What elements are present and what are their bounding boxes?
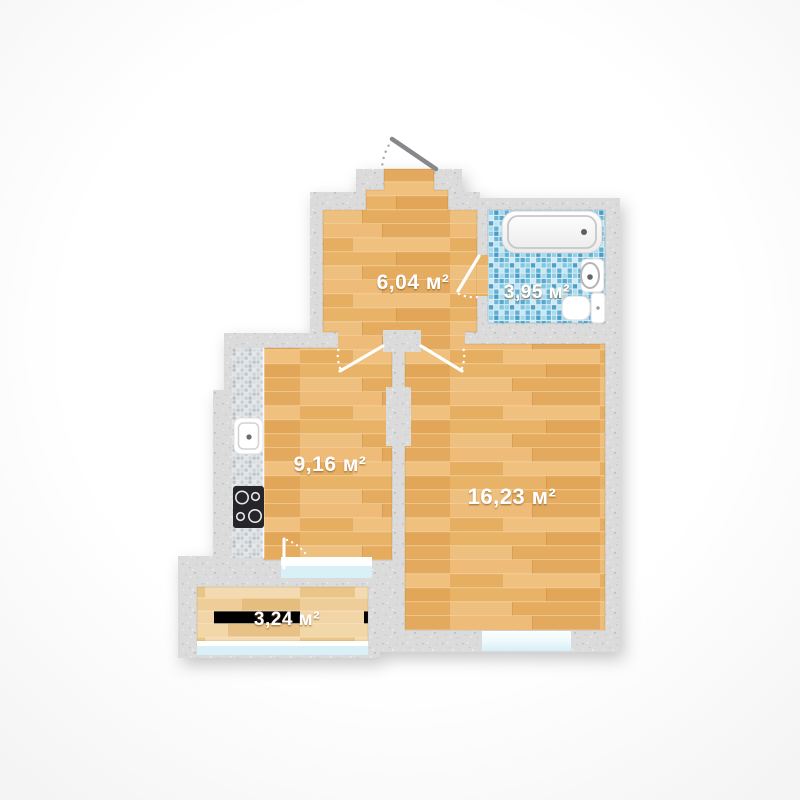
entrance-door (382, 139, 436, 169)
floor-plan: 6,04 м² 3,95 м² 9,16 м² 16,23 м² 3,24 м² (0, 0, 800, 800)
floor-plan-page: 6,04 м² 3,95 м² 9,16 м² 16,23 м² 3,24 м² (0, 0, 800, 800)
cooktop (233, 486, 264, 528)
entrance-door-leaf (392, 139, 436, 169)
living-room-area-label: 16,23 м² (468, 484, 557, 509)
kitchen-area-label: 9,16 м² (294, 453, 367, 476)
kitchen-sink (234, 418, 263, 454)
hallway-area-label: 6,04 м² (377, 271, 450, 294)
washbasin (581, 259, 604, 292)
living-doorway-threshold (421, 331, 465, 345)
door-wall-stub (383, 330, 421, 352)
kitchen-balcony-window (281, 557, 372, 578)
balcony-area-label: 3,24 м² (254, 609, 320, 630)
bathroom-area-label: 3,95 м² (504, 282, 570, 303)
wall-pilaster (386, 387, 411, 446)
bathroom-doorway-threshold (477, 255, 488, 296)
entrance-door-arc (382, 140, 392, 168)
living-room-window (482, 631, 571, 651)
balcony-glazing (197, 641, 368, 655)
bathtub (502, 211, 602, 253)
kitchen-doorway-threshold (338, 331, 383, 349)
